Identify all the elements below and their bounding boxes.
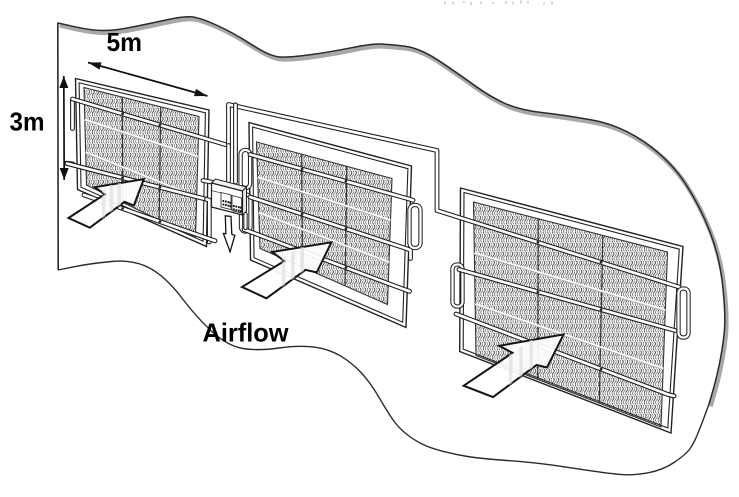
svg-text:5m: 5m [107, 27, 143, 57]
svg-text:3m: 3m [10, 107, 45, 137]
svg-text:Airflow: Airflow [203, 318, 290, 348]
